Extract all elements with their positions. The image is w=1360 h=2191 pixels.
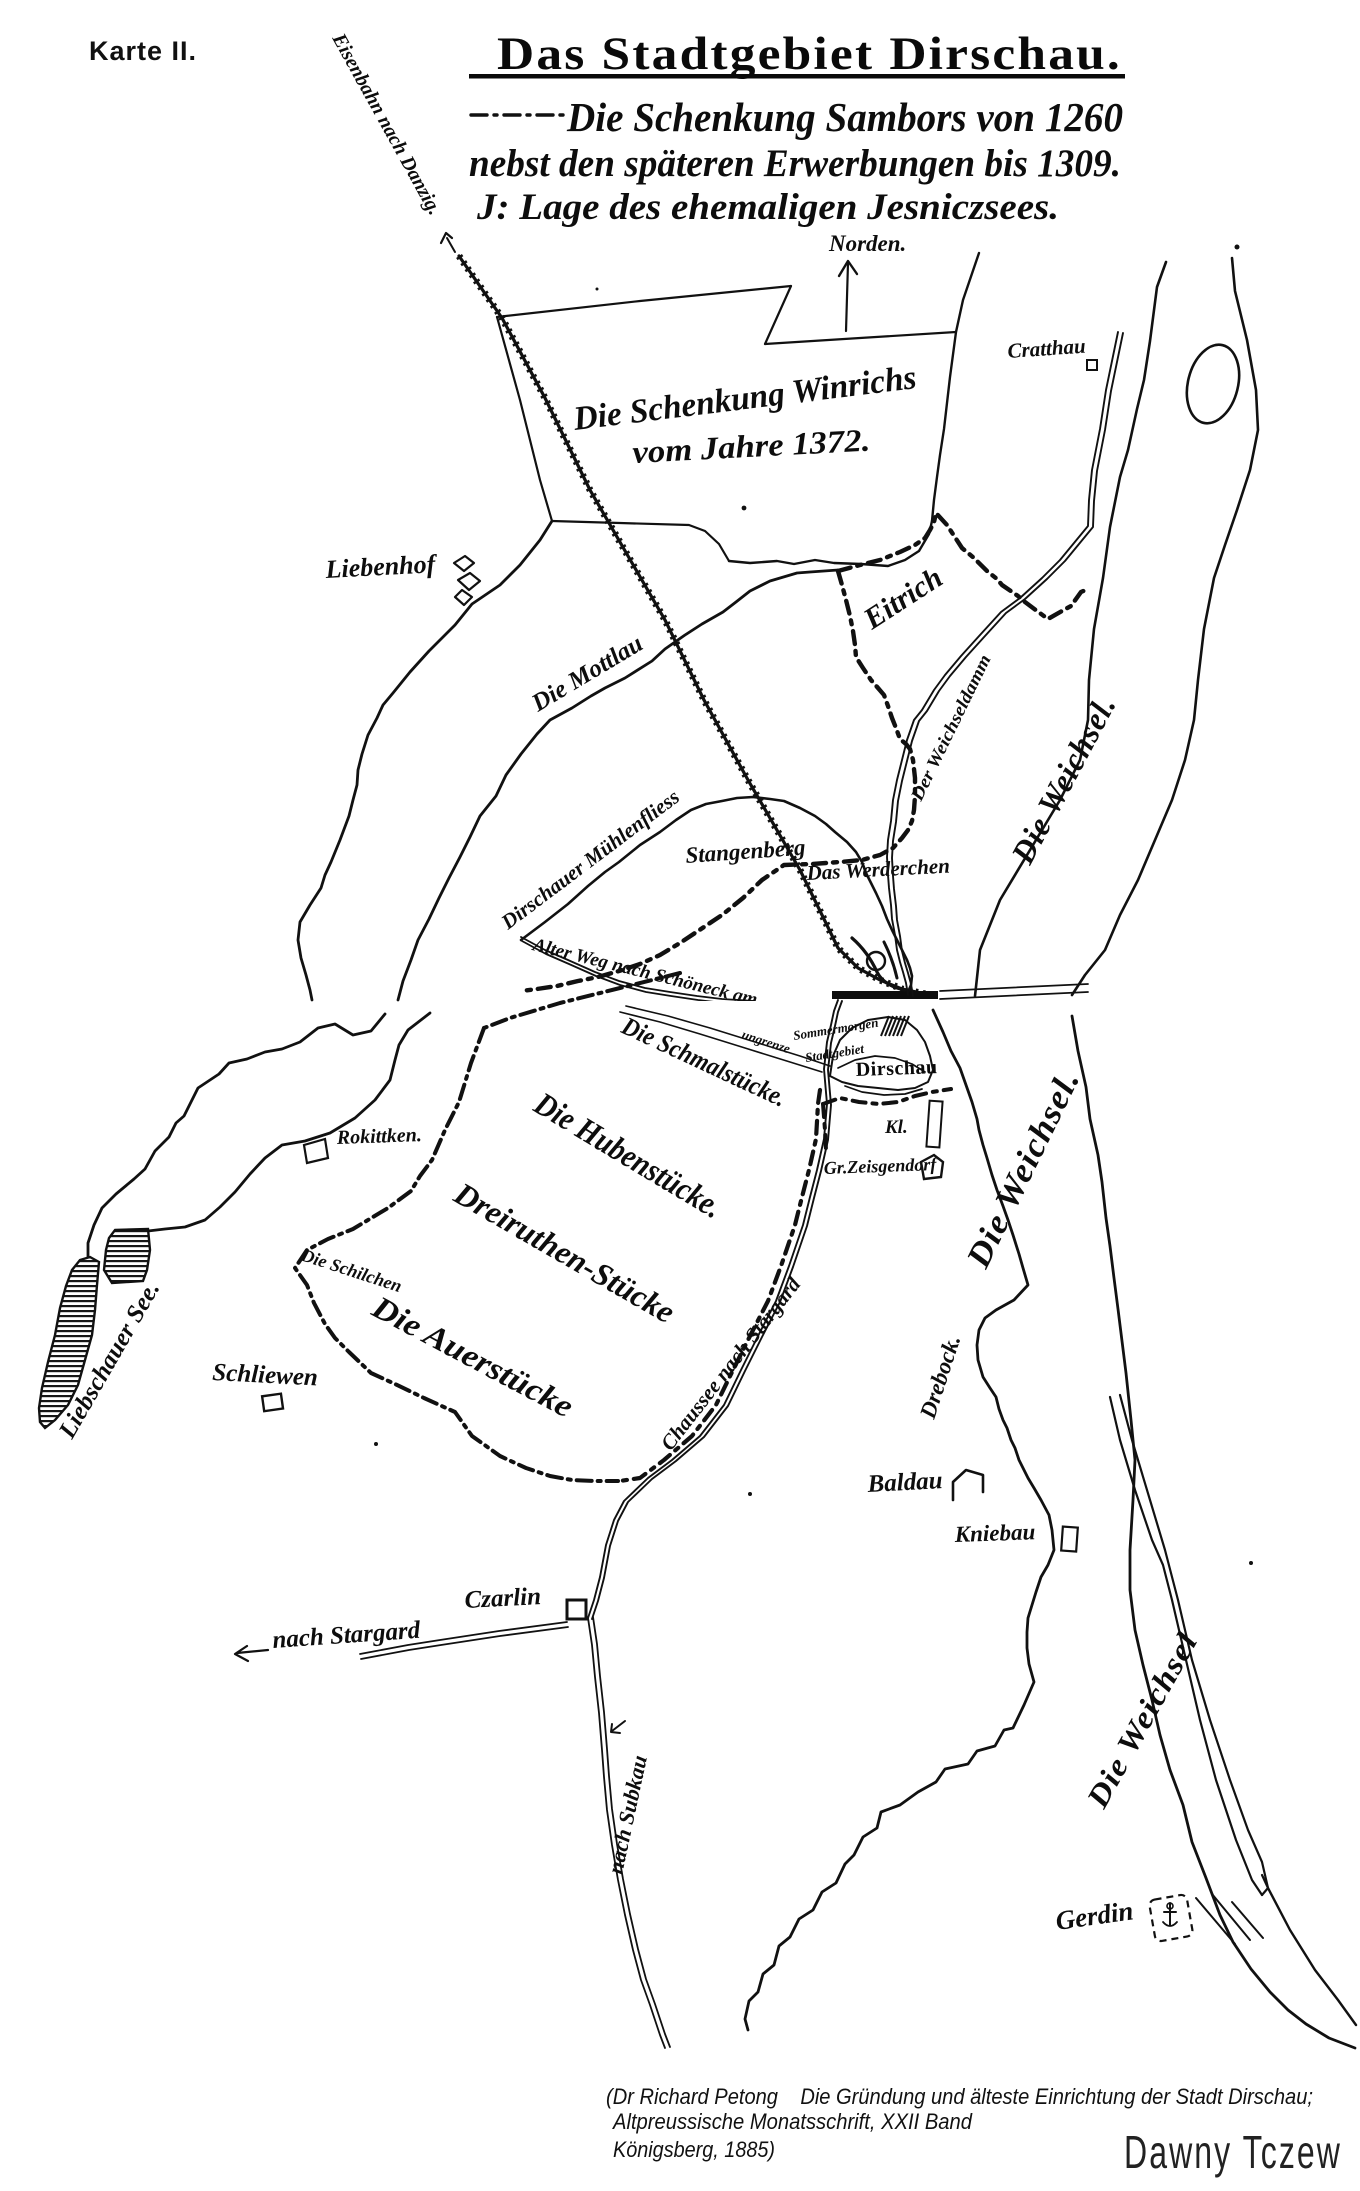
- svg-text:Das Stadtgebiet Dirschau.: Das Stadtgebiet Dirschau.: [497, 28, 1122, 80]
- svg-text:Kl.: Kl.: [884, 1117, 908, 1138]
- svg-text:Dawny Tczew: Dawny Tczew: [1124, 2126, 1342, 2178]
- svg-text:Czarlin: Czarlin: [464, 1583, 542, 1614]
- svg-text:Rokittken.: Rokittken.: [335, 1124, 422, 1149]
- svg-text:Königsberg, 1885): Königsberg, 1885): [613, 2137, 775, 2162]
- svg-text:(Dr Richard Petong Die Grün: (Dr Richard Petong Die Gründung und älte…: [606, 2084, 1313, 2109]
- svg-text:Liebenhof: Liebenhof: [324, 549, 438, 584]
- svg-text:Dirschau: Dirschau: [855, 1056, 938, 1081]
- svg-text:Altpreussische Monatsschrift,: Altpreussische Monatsschrift, XXII Band: [611, 2109, 973, 2134]
- svg-text:Die Schenkung Sambors von 1260: Die Schenkung Sambors von 1260: [566, 94, 1123, 140]
- svg-text:nebst den späteren Erwerbungen: nebst den späteren Erwerbungen bis 1309.: [469, 142, 1121, 185]
- svg-text:J: Lage des ehemaligen Jesnicz: J: Lage des ehemaligen Jesniczsees.: [476, 187, 1059, 228]
- svg-text:Baldau: Baldau: [866, 1467, 943, 1498]
- svg-text:Norden.: Norden.: [828, 231, 906, 256]
- svg-text:Karte II.: Karte II.: [89, 36, 197, 66]
- svg-text:Kniebau: Kniebau: [953, 1519, 1036, 1547]
- svg-text:Schliewen: Schliewen: [212, 1359, 319, 1391]
